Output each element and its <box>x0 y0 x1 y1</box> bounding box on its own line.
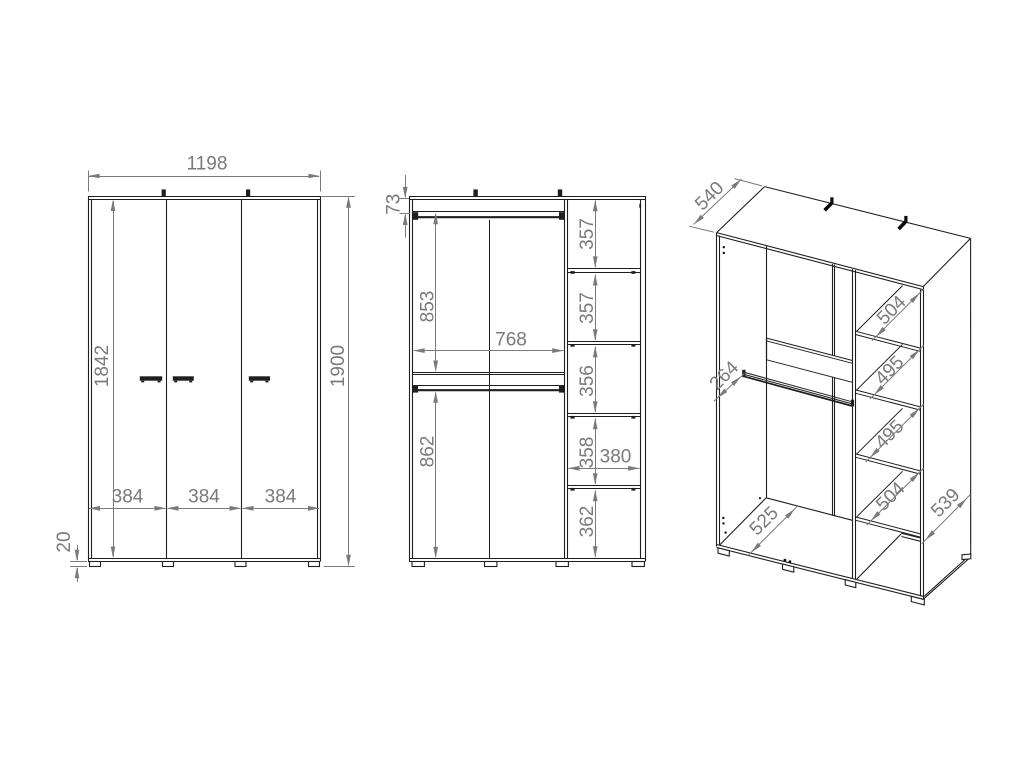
svg-text:357: 357 <box>577 292 598 324</box>
svg-text:1900: 1900 <box>328 345 349 387</box>
svg-text:380: 380 <box>600 446 632 467</box>
svg-text:20: 20 <box>54 531 75 552</box>
svg-text:384: 384 <box>188 487 220 508</box>
svg-text:862: 862 <box>418 436 439 468</box>
svg-text:384: 384 <box>112 487 144 508</box>
svg-text:853: 853 <box>418 291 439 323</box>
svg-text:358: 358 <box>577 437 598 469</box>
svg-text:357: 357 <box>577 218 598 250</box>
svg-text:1842: 1842 <box>92 345 113 387</box>
svg-text:73: 73 <box>384 194 405 215</box>
svg-text:768: 768 <box>495 330 527 351</box>
svg-text:362: 362 <box>577 506 598 538</box>
svg-text:1198: 1198 <box>187 154 228 175</box>
svg-text:356: 356 <box>577 365 598 397</box>
svg-text:384: 384 <box>265 487 297 508</box>
